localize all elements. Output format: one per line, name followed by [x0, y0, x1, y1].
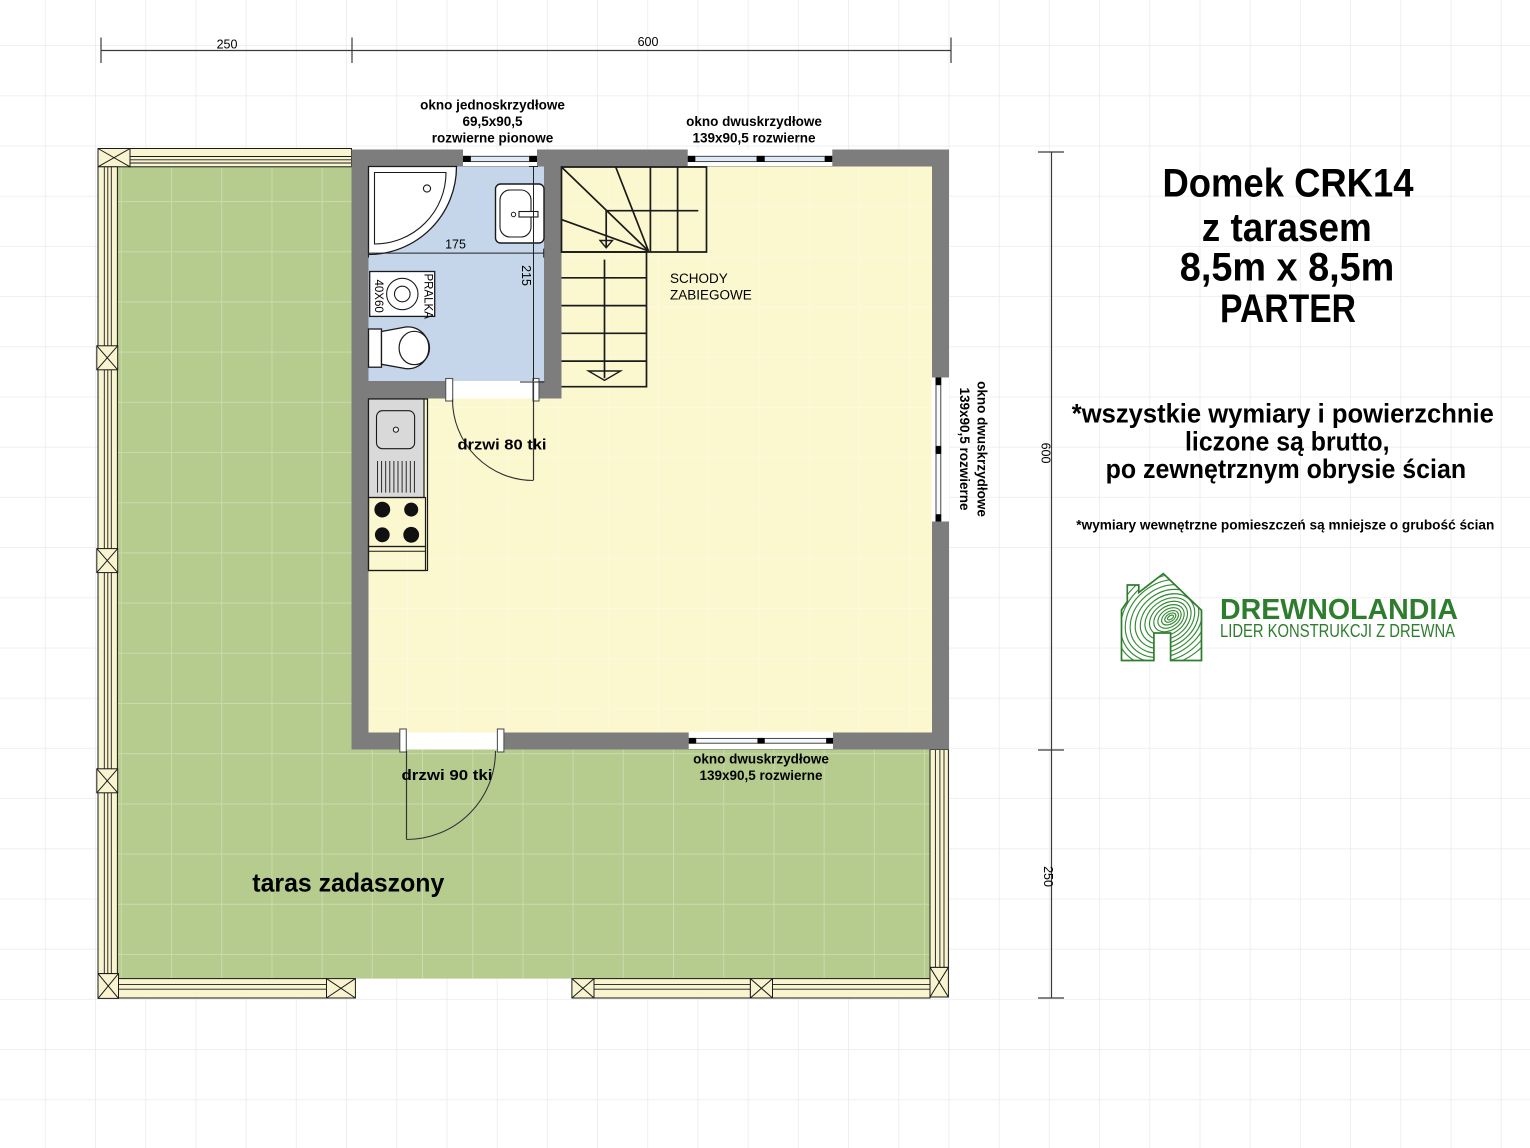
svg-text:215: 215 [519, 265, 533, 286]
svg-text:250: 250 [217, 38, 238, 52]
svg-text:PRALKA: PRALKA [422, 274, 434, 320]
svg-text:LIDER KONSTRUKCJI Z DREWNA: LIDER KONSTRUKCJI Z DREWNA [1220, 620, 1456, 641]
svg-text:40X60: 40X60 [372, 280, 384, 313]
svg-text:600: 600 [1039, 443, 1053, 464]
svg-text:liczone są brutto,: liczone są brutto, [1185, 426, 1390, 456]
svg-text:*wszystkie wymiary i powierzch: *wszystkie wymiary i powierzchnie [1072, 398, 1494, 428]
svg-text:drzwi 80 tki: drzwi 80 tki [458, 437, 547, 454]
svg-text:*wymiary wewnętrzne pomieszcze: *wymiary wewnętrzne pomieszczeń są mniej… [1076, 517, 1494, 533]
svg-text:PARTER: PARTER [1220, 287, 1356, 331]
svg-text:okno dwuskrzydłowe: okno dwuskrzydłowe [975, 381, 990, 517]
svg-text:taras zadaszony: taras zadaszony [252, 868, 445, 898]
svg-text:250: 250 [1041, 866, 1055, 887]
svg-text:okno dwuskrzydłowe139x90,5 roz: okno dwuskrzydłowe139x90,5 rozwierne [686, 114, 822, 145]
svg-text:8,5m x 8,5m: 8,5m x 8,5m [1180, 246, 1395, 290]
svg-text:Domek CRK14: Domek CRK14 [1163, 162, 1415, 206]
svg-text:139x90,5 rozwierne: 139x90,5 rozwierne [957, 387, 972, 511]
svg-text:okno dwuskrzydłowe139x90,5 roz: okno dwuskrzydłowe139x90,5 rozwierne [693, 752, 829, 783]
svg-text:600: 600 [638, 35, 659, 49]
svg-text:po zewnętrznym obrysie ścian: po zewnętrznym obrysie ścian [1106, 454, 1467, 484]
svg-text:175: 175 [445, 238, 466, 252]
svg-text:z tarasem: z tarasem [1202, 206, 1372, 250]
svg-text:drzwi 90 tki: drzwi 90 tki [402, 767, 493, 784]
